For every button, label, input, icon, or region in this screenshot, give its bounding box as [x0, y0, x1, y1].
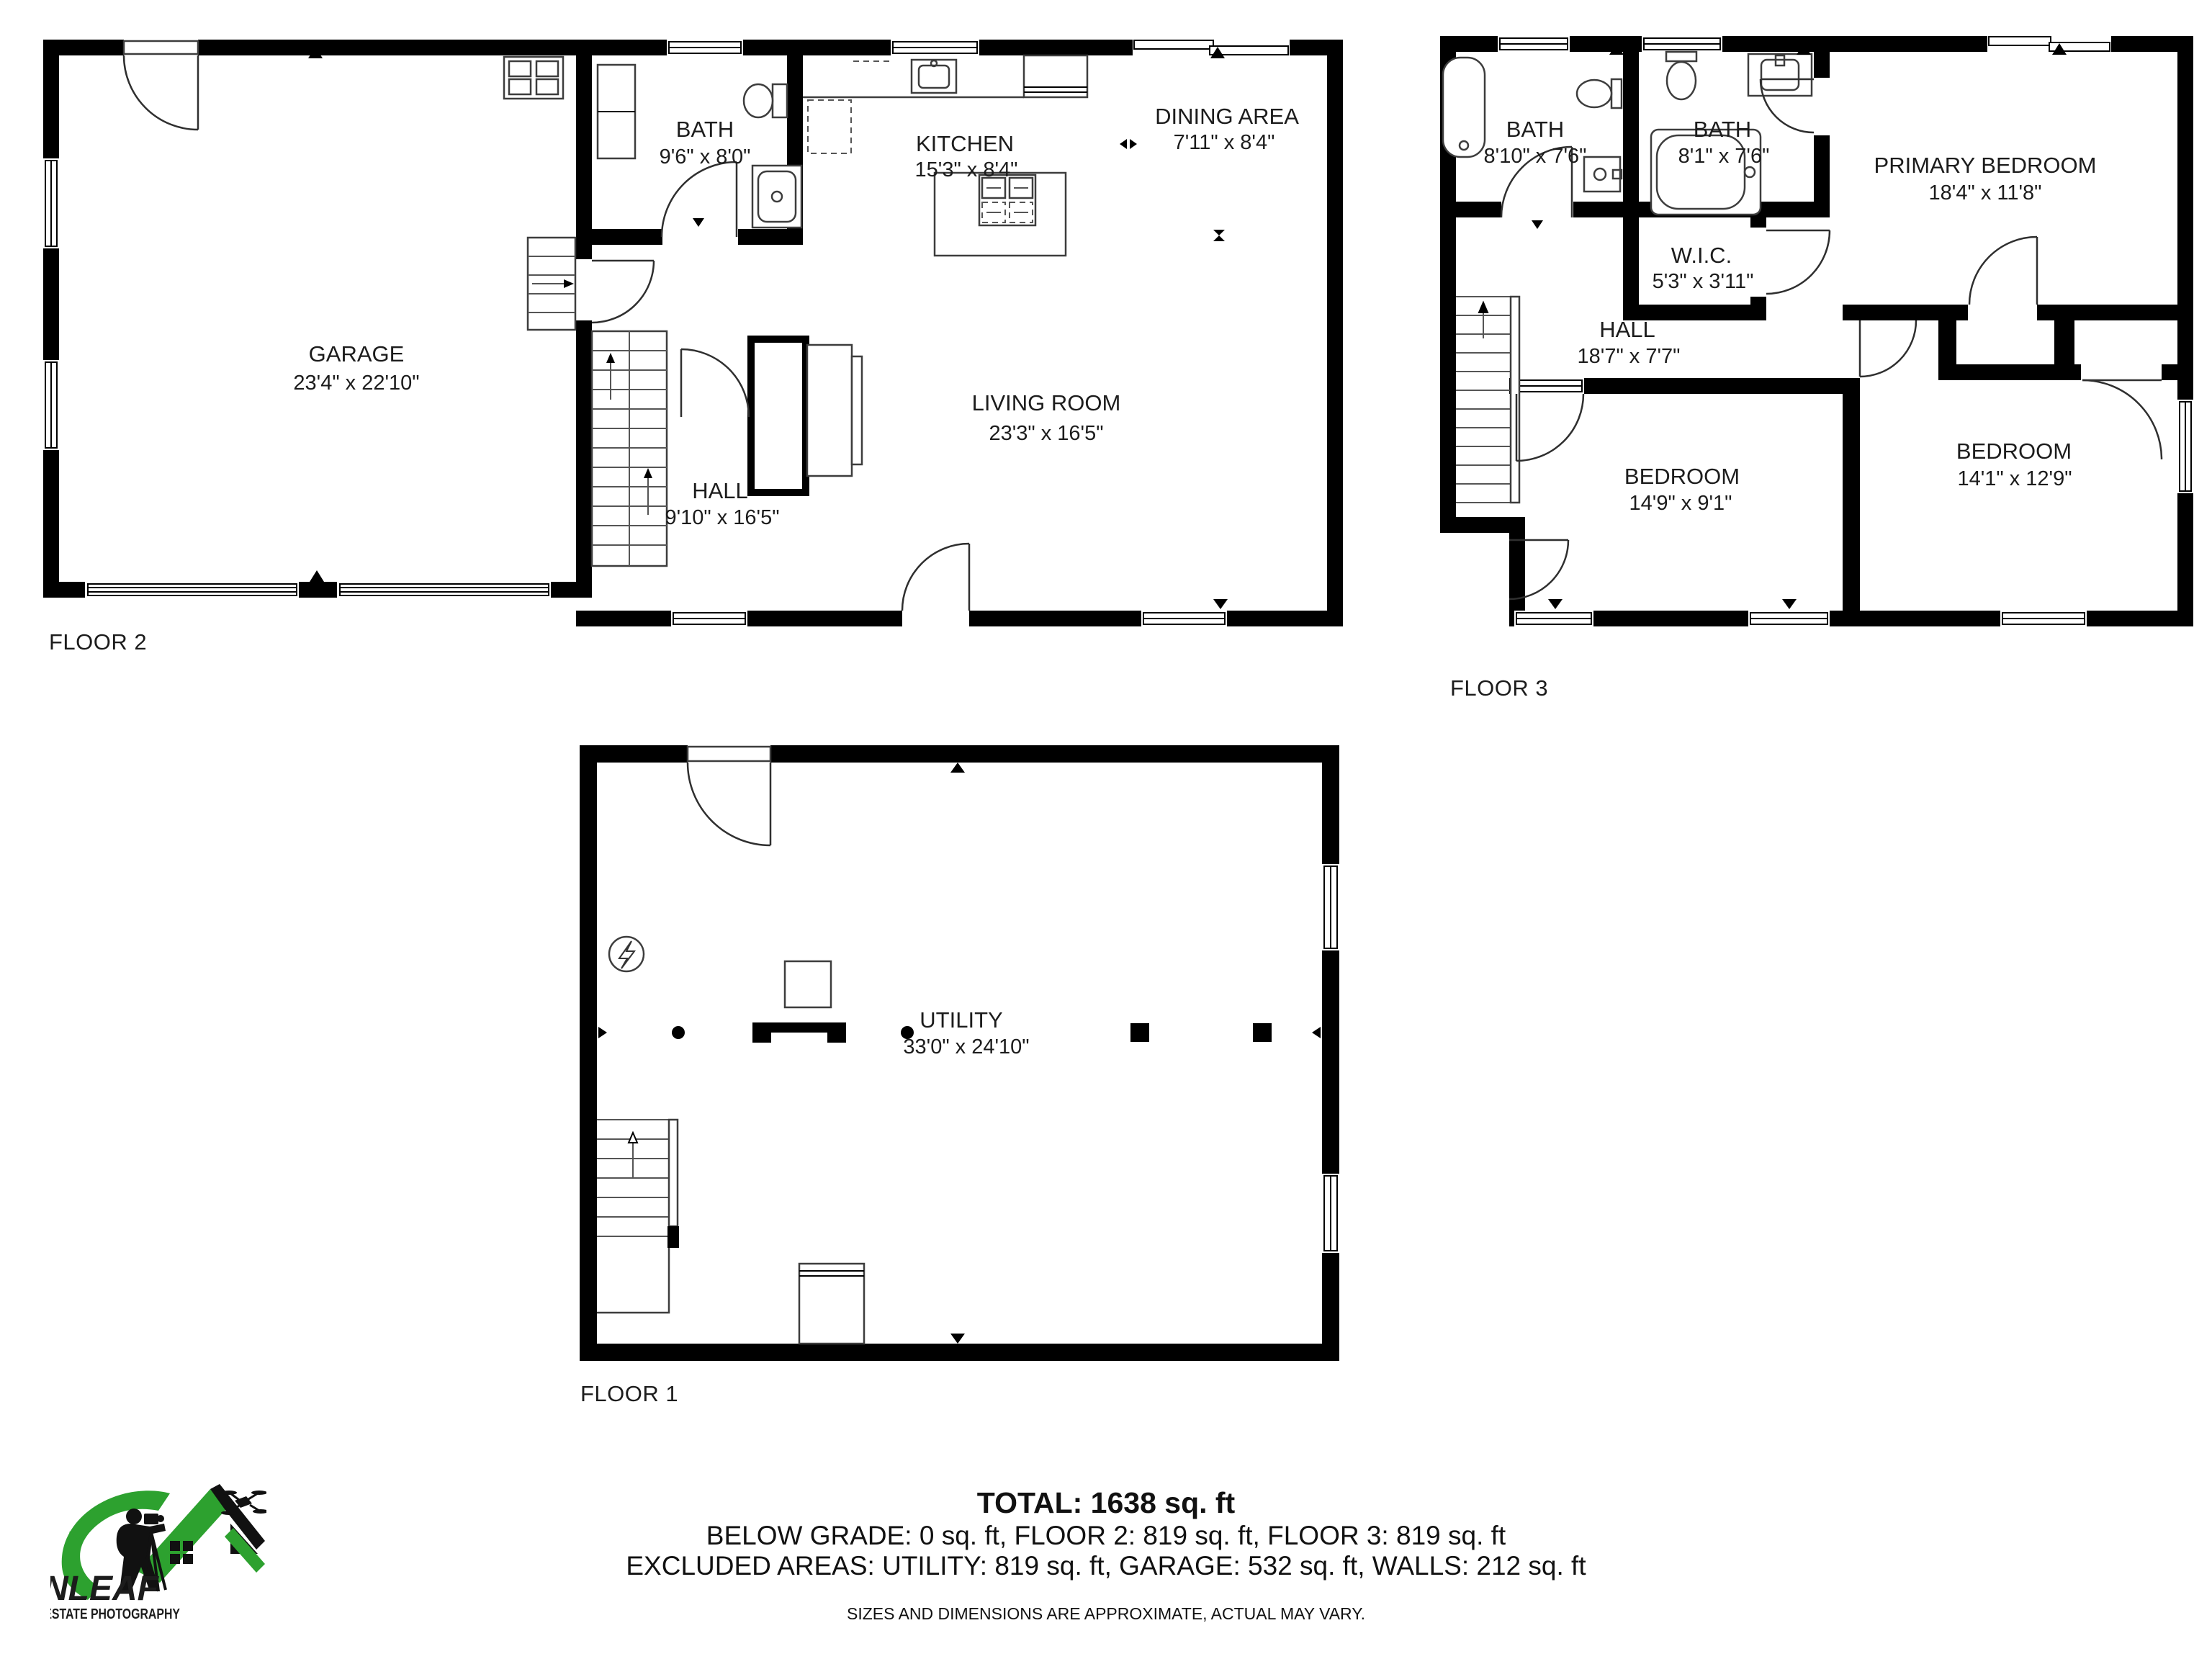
company-logo: GREENLEAF REAL ESTATE PHOTOGRAPHY	[50, 1482, 266, 1626]
toilet-icon	[744, 84, 787, 117]
room-label: BATH	[676, 117, 734, 142]
window	[2000, 611, 2087, 626]
room-dims: 9'6" x 8'0"	[660, 145, 751, 168]
garage-door-right	[337, 582, 551, 598]
stove-icon	[504, 57, 563, 99]
summary-disclaimer: SIZES AND DIMENSIONS ARE APPROXIMATE, AC…	[0, 1604, 2212, 1624]
door-garage	[124, 55, 198, 130]
room-dims: 14'1" x 12'9"	[1957, 467, 2072, 490]
room-dims: 23'4" x 22'10"	[293, 372, 419, 395]
water-heater-icon	[785, 961, 831, 1007]
room-dims: 23'3" x 16'5"	[989, 422, 1103, 445]
room-label: BEDROOM	[1624, 464, 1740, 489]
door-closet-right	[2082, 380, 2162, 459]
electrical-panel-icon	[609, 937, 644, 971]
floor1-label: FLOOR 1	[580, 1381, 678, 1407]
room-dims: 5'3" x 3'11"	[1653, 270, 1754, 293]
toilet-icon	[1577, 79, 1622, 108]
kitchen-island	[935, 173, 1066, 256]
room-dims: 8'1" x 7'6"	[1678, 145, 1770, 168]
window-double	[1987, 36, 2111, 52]
window	[891, 40, 979, 55]
room-label: W.I.C.	[1671, 243, 1732, 268]
room-label: UTILITY	[920, 1007, 1002, 1033]
floor1-labels: UTILITY 33'0" x 24'10"	[903, 1007, 1029, 1058]
sink-icon	[1584, 157, 1622, 192]
room-label: BEDROOM	[1956, 439, 2072, 464]
bathtub-icon	[1651, 130, 1761, 215]
floor1-fixtures	[609, 937, 1272, 1344]
garage-door-left	[85, 582, 299, 598]
summary-total: TOTAL: 1638 sq. ft	[0, 1486, 2212, 1520]
sink-icon	[1748, 54, 1812, 96]
floor2-openings	[85, 40, 969, 626]
floor2-label: FLOOR 2	[49, 629, 147, 655]
room-dims: 8'10" x 7'6"	[1484, 145, 1587, 168]
logo-brand: GREENLEAF	[50, 1570, 160, 1608]
room-dims: 33'0" x 24'10"	[903, 1035, 1029, 1058]
window	[1514, 611, 1593, 626]
room-label: HALL	[1599, 317, 1655, 342]
shower-icon	[752, 166, 801, 228]
room-label: KITCHEN	[916, 131, 1014, 156]
room-dims: 7'11" x 8'4"	[1174, 131, 1275, 154]
summary-excluded: EXCLUDED AREAS: UTILITY: 819 sq. ft, GAR…	[0, 1551, 2212, 1581]
room-label: BATH	[1694, 117, 1751, 142]
room-label: PRIMARY BEDROOM	[1874, 153, 2097, 178]
sofa	[807, 345, 862, 476]
door-wic	[1766, 230, 1830, 294]
window	[43, 360, 59, 450]
window	[671, 611, 747, 626]
room-dims: 18'7" x 7'7"	[1578, 345, 1681, 368]
bath-closet	[598, 65, 635, 158]
floor3-label: FLOOR 3	[1450, 675, 1548, 701]
bathtub-icon	[1443, 58, 1485, 157]
room-dims: 18'4" x 11'8"	[1929, 181, 2042, 204]
room-dims: 15'3" x 8'4"	[915, 158, 1018, 181]
room-label: BATH	[1506, 117, 1564, 142]
appliance-box	[799, 1264, 864, 1344]
window	[1642, 36, 1722, 52]
floor3-plan: BATH 8'10" x 7'6" BATH 8'1" x 7'6" PRIMA…	[1440, 36, 2196, 626]
window	[43, 158, 59, 248]
room-label: DINING AREA	[1155, 104, 1299, 129]
window	[1322, 864, 1339, 950]
door-bedroom1	[1516, 394, 1583, 461]
floor2-plan: GARAGE 23'4" x 22'10" BATH 9'6" x 8'0" K…	[43, 40, 1346, 634]
floor2-doors	[124, 55, 969, 611]
window-double	[1133, 40, 1290, 55]
window	[1322, 1174, 1339, 1253]
floor1-plan: UTILITY 33'0" x 24'10"	[580, 745, 1343, 1364]
window	[1141, 611, 1227, 626]
room-label: LIVING ROOM	[972, 390, 1121, 415]
room-label: HALL	[692, 478, 748, 503]
door-hall-living	[681, 349, 749, 417]
window	[1748, 611, 1830, 626]
summary-breakdown: BELOW GRADE: 0 sq. ft, FLOOR 2: 819 sq. …	[0, 1521, 2212, 1551]
room-dims: 14'9" x 9'1"	[1629, 492, 1732, 515]
room-label: GARAGE	[309, 341, 405, 367]
toilet-icon	[1666, 52, 1696, 99]
chimney	[751, 339, 806, 493]
door-primary	[1969, 237, 2037, 305]
door-front	[902, 544, 969, 611]
window	[667, 40, 743, 55]
floorplan-sheet: GARAGE 23'4" x 22'10" BATH 9'6" x 8'0" K…	[0, 0, 2212, 1659]
logo-tagline: REAL ESTATE PHOTOGRAPHY	[50, 1606, 181, 1622]
floor3-stairs	[1456, 297, 1519, 503]
door-entry	[592, 261, 654, 323]
door-basement	[688, 763, 770, 845]
window	[2177, 400, 2193, 493]
hall-bedroom-opening	[1516, 378, 1584, 394]
window	[1498, 36, 1570, 52]
door-bedroom2	[1860, 320, 1916, 377]
floor1-stairs	[597, 1120, 679, 1313]
room-dims: 9'10" x 16'5"	[665, 506, 779, 529]
floor2-stairs	[528, 238, 667, 566]
